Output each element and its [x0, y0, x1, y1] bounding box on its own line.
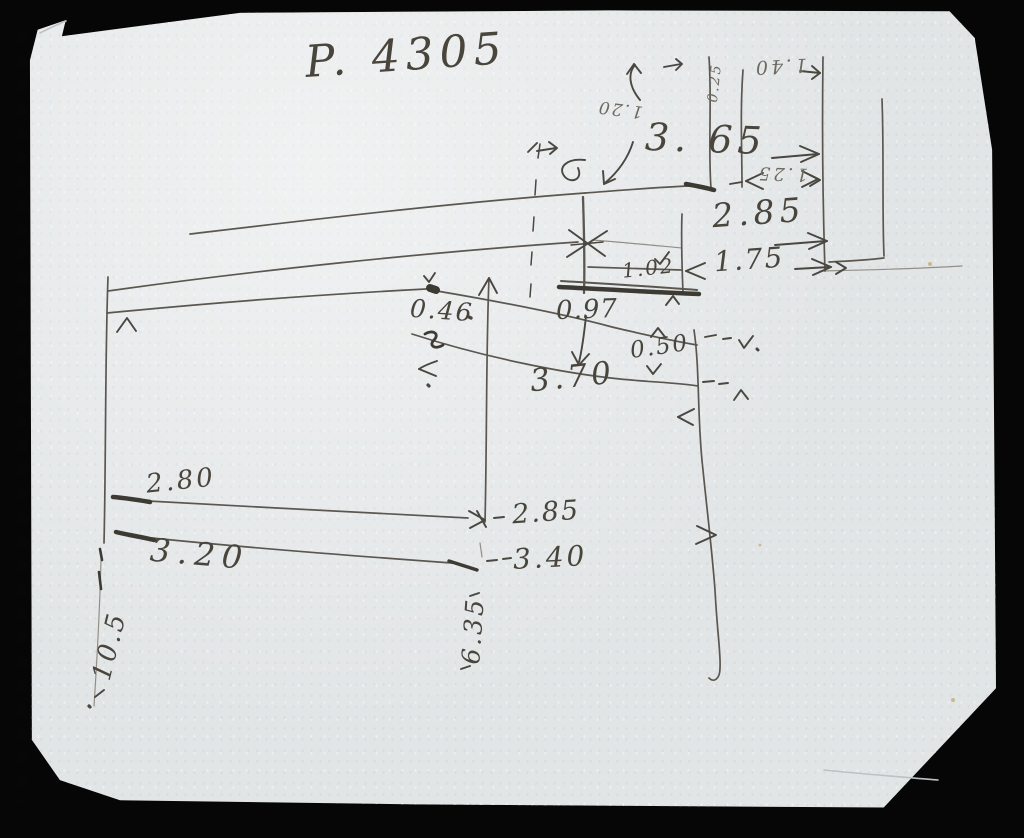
dimension-2-80: 2.80: [145, 464, 217, 497]
dimension-6-35-rotated: 6.35: [458, 594, 488, 668]
dimension-3-70: 3.70: [529, 358, 617, 398]
paper-specks: [759, 262, 955, 702]
dimension-3-20: 3.20: [149, 534, 251, 575]
dimension-3-40: 3.40: [512, 542, 588, 574]
pencil-lines-main: [104, 57, 884, 680]
dimension-0-97: 0.97: [556, 296, 619, 324]
dimension-1-40-upside-down: 1.40: [746, 54, 815, 77]
pencil-sketch-svg: [0, 0, 1024, 838]
dimension-2-85-right: 2.85: [711, 193, 807, 232]
dimension-1-75: 1.75: [713, 244, 785, 277]
dimension-1-25-upside-down: 1.25: [750, 163, 815, 183]
dimension-2-85-mid: 2.85: [511, 497, 581, 529]
photographed-sketch: P. 4305 0.25 1.40 1.20 3. 65 1.25 2.85 1…: [0, 0, 1024, 838]
paper-creases: [40, 21, 938, 780]
dimension-0-46: 0.46: [409, 296, 474, 325]
dimension-3-65: 3. 65: [644, 118, 767, 160]
pencil-strokes-heavy: [99, 184, 714, 589]
pencil-lines-faint: [94, 240, 962, 706]
dimension-1-02: 1.02: [621, 255, 675, 280]
